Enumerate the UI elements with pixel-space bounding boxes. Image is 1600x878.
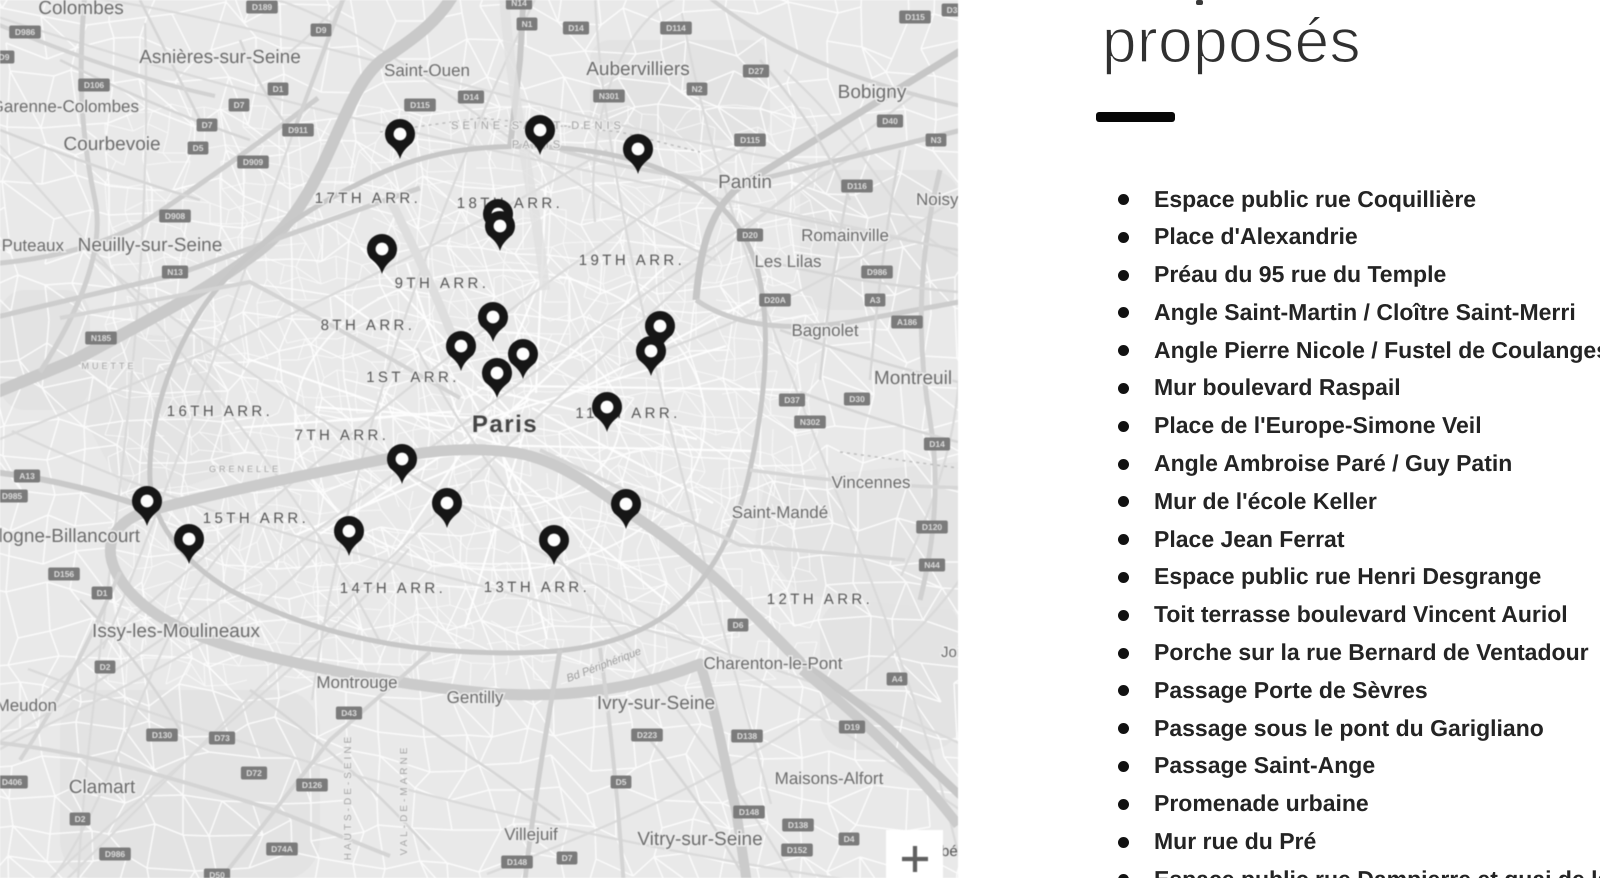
svg-text:D223: D223	[637, 730, 658, 740]
svg-text:La Garenne-Colombes: La Garenne-Colombes	[0, 97, 139, 116]
svg-text:N185: N185	[91, 333, 112, 343]
svg-text:Bobigny: Bobigny	[838, 82, 907, 103]
svg-text:Montreuil: Montreuil	[874, 368, 952, 389]
svg-text:15TH ARR.: 15TH ARR.	[203, 510, 309, 527]
svg-text:D43: D43	[341, 708, 357, 718]
svg-text:N302: N302	[800, 417, 821, 427]
svg-text:D14: D14	[463, 92, 479, 102]
svg-text:D985: D985	[2, 491, 23, 501]
svg-text:Charenton-le-Pont: Charenton-le-Pont	[704, 654, 843, 673]
svg-text:Vitry-sur-Seine: Vitry-sur-Seine	[637, 829, 762, 850]
svg-text:Colombes: Colombes	[38, 0, 124, 19]
svg-text:D156: D156	[54, 569, 75, 579]
svg-text:D148: D148	[739, 807, 760, 817]
svg-text:Clamart: Clamart	[69, 777, 136, 798]
svg-text:A13: A13	[19, 471, 35, 481]
svg-text:HAUTS-DE-SEINE: HAUTS-DE-SEINE	[343, 734, 354, 860]
svg-text:N13: N13	[167, 267, 183, 277]
svg-text:N1: N1	[522, 19, 533, 29]
svg-text:1ST ARR.: 1ST ARR.	[366, 369, 460, 386]
svg-text:D120: D120	[922, 522, 943, 532]
svg-text:D115: D115	[905, 12, 925, 22]
svg-text:D14: D14	[568, 23, 584, 33]
svg-text:D30: D30	[849, 394, 865, 404]
svg-text:Joinville: Joinville	[941, 644, 958, 661]
svg-text:D19: D19	[844, 722, 860, 732]
svg-text:Noisy-le-Sec: Noisy-le-Sec	[916, 190, 958, 209]
svg-text:Issy-les-Moulineaux: Issy-les-Moulineaux	[92, 621, 260, 642]
svg-text:D27: D27	[748, 66, 764, 76]
svg-text:Paris: Paris	[472, 411, 538, 438]
svg-text:D72: D72	[246, 768, 262, 778]
svg-text:D115: D115	[740, 135, 760, 145]
svg-text:D74A: D74A	[271, 844, 293, 854]
svg-text:D126: D126	[302, 780, 323, 790]
svg-text:D189: D189	[252, 2, 273, 12]
svg-text:MUETTE: MUETTE	[82, 361, 137, 371]
svg-text:Ivry-sur-Seine: Ivry-sur-Seine	[597, 693, 715, 714]
svg-text:Vincennes: Vincennes	[831, 473, 910, 492]
svg-text:D40: D40	[882, 116, 898, 126]
svg-text:Meudon: Meudon	[0, 696, 57, 715]
svg-text:D20A: D20A	[764, 295, 786, 305]
svg-text:7TH ARR.: 7TH ARR.	[295, 427, 390, 444]
svg-text:D911: D911	[288, 125, 308, 135]
svg-text:16TH ARR.: 16TH ARR.	[167, 403, 273, 420]
svg-text:D908: D908	[165, 211, 186, 221]
svg-text:D7: D7	[202, 120, 213, 130]
svg-text:14TH ARR.: 14TH ARR.	[340, 580, 446, 597]
svg-text:D986: D986	[15, 27, 36, 37]
svg-text:13TH ARR.: 13TH ARR.	[484, 579, 590, 596]
svg-text:Gentilly: Gentilly	[447, 688, 504, 707]
svg-text:D148: D148	[507, 857, 528, 867]
svg-text:D37: D37	[784, 395, 800, 405]
svg-text:D9: D9	[316, 25, 327, 35]
svg-text:Neuilly-sur-Seine: Neuilly-sur-Seine	[78, 235, 223, 256]
svg-text:D3: D3	[947, 5, 958, 15]
svg-text:Bagnolet: Bagnolet	[791, 321, 858, 340]
svg-text:19TH ARR.: 19TH ARR.	[579, 252, 685, 269]
svg-text:N2: N2	[692, 84, 703, 94]
svg-text:GRENELLE: GRENELLE	[209, 464, 281, 474]
svg-text:D986: D986	[867, 267, 888, 277]
svg-text:D909: D909	[243, 157, 264, 167]
svg-text:Montrouge: Montrouge	[316, 673, 397, 692]
svg-text:A3: A3	[870, 295, 881, 305]
svg-text:D138: D138	[788, 820, 809, 830]
svg-text:D73: D73	[214, 733, 230, 743]
svg-text:Saint-Mandé: Saint-Mandé	[732, 503, 828, 522]
svg-text:A4: A4	[892, 674, 903, 684]
svg-text:D50: D50	[209, 870, 225, 878]
svg-text:D5: D5	[616, 777, 627, 787]
svg-text:D7: D7	[234, 100, 245, 110]
svg-text:D4: D4	[844, 834, 855, 844]
svg-text:bé: bé	[941, 843, 958, 860]
svg-text:D5: D5	[193, 143, 204, 153]
svg-text:Romainville: Romainville	[801, 226, 889, 245]
svg-text:17TH ARR.: 17TH ARR.	[315, 190, 421, 207]
svg-text:9TH ARR.: 9TH ARR.	[395, 275, 490, 292]
svg-text:D7: D7	[562, 853, 573, 863]
svg-text:D152: D152	[787, 845, 808, 855]
svg-text:Puteaux: Puteaux	[2, 236, 65, 255]
svg-text:Asnières-sur-Seine: Asnières-sur-Seine	[139, 47, 301, 68]
svg-text:N44: N44	[924, 560, 940, 570]
svg-text:N3: N3	[931, 135, 942, 145]
svg-text:D130: D130	[152, 730, 173, 740]
svg-text:N14: N14	[511, 0, 527, 8]
svg-text:D20: D20	[742, 230, 758, 240]
svg-text:D9: D9	[0, 52, 10, 62]
svg-text:Courbevoie: Courbevoie	[63, 134, 160, 155]
svg-text:VAL-DE-MARNE: VAL-DE-MARNE	[399, 745, 410, 856]
svg-text:D14: D14	[929, 439, 945, 449]
svg-text:D2: D2	[75, 814, 86, 824]
svg-text:D115: D115	[410, 100, 430, 110]
svg-text:D6: D6	[733, 620, 744, 630]
svg-text:Pantin: Pantin	[718, 172, 772, 193]
svg-text:Maisons-Alfort: Maisons-Alfort	[775, 769, 884, 788]
svg-text:D406: D406	[2, 777, 23, 787]
svg-text:D116: D116	[847, 181, 867, 191]
svg-text:Les Lilas: Les Lilas	[754, 252, 821, 271]
svg-text:Boulogne-Billancourt: Boulogne-Billancourt	[0, 526, 141, 547]
svg-text:12TH ARR.: 12TH ARR.	[767, 591, 873, 608]
svg-text:Villejuif: Villejuif	[504, 825, 558, 844]
svg-text:11TH ARR.: 11TH ARR.	[575, 405, 680, 422]
svg-text:D114: D114	[666, 23, 686, 33]
svg-text:D986: D986	[105, 849, 126, 859]
svg-text:Saint-Ouen: Saint-Ouen	[384, 61, 470, 80]
svg-text:D2: D2	[100, 662, 111, 672]
svg-text:8TH ARR.: 8TH ARR.	[321, 317, 416, 334]
svg-text:D138: D138	[737, 731, 758, 741]
svg-text:N301: N301	[599, 91, 620, 101]
svg-text:Aubervilliers: Aubervilliers	[586, 59, 689, 80]
svg-text:D1: D1	[97, 588, 108, 598]
svg-text:D106: D106	[84, 80, 105, 90]
svg-text:A186: A186	[897, 317, 918, 327]
svg-text:D1: D1	[273, 84, 284, 94]
